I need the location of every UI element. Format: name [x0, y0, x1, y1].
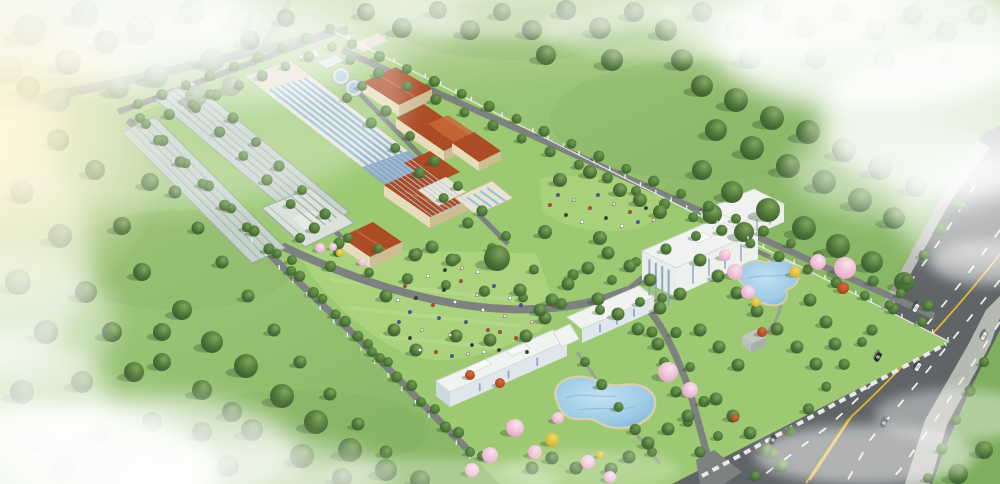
street-tree [803, 403, 814, 414]
garden-tree [380, 290, 393, 303]
person [530, 320, 533, 323]
street-tree [646, 326, 657, 337]
yellow-shrub [545, 433, 559, 447]
tree [304, 410, 328, 434]
fence-post [609, 167, 610, 172]
garden-tree [612, 308, 625, 321]
aerial-site-rendering [0, 0, 1000, 484]
person [636, 220, 639, 223]
garden-tree [446, 254, 459, 267]
street-tree [773, 251, 784, 262]
street-tree [685, 362, 695, 372]
garden-tree [380, 446, 393, 459]
blossom-tree [658, 362, 678, 382]
street-tree [884, 300, 894, 310]
fence-post [763, 244, 764, 249]
person [437, 316, 440, 319]
fence-post [655, 190, 656, 195]
person [426, 274, 429, 277]
tree [705, 119, 727, 141]
fence-post [548, 136, 549, 141]
fence-post [671, 198, 672, 203]
street-tree [405, 131, 415, 141]
garden-tree [644, 274, 657, 287]
garden-tree [324, 388, 337, 401]
person [580, 220, 583, 223]
street-tree [242, 222, 252, 232]
street-tree [648, 176, 659, 187]
garden-tree [662, 423, 675, 436]
garden-tree [593, 231, 607, 245]
person [548, 203, 551, 206]
garden-tree [546, 294, 559, 307]
garden-tree [409, 249, 422, 262]
street-tree [621, 164, 631, 174]
street-tree [465, 447, 475, 457]
street-tree [295, 233, 305, 243]
person [481, 308, 484, 311]
street-tree [364, 268, 374, 278]
person [464, 320, 467, 323]
street-tree [440, 421, 451, 432]
fence-post [279, 265, 280, 270]
street-tree [917, 317, 927, 327]
tree [153, 353, 171, 371]
street-tree [566, 139, 576, 149]
tree [740, 136, 764, 160]
person [564, 213, 567, 216]
street-tree [462, 217, 473, 228]
garden-tree [602, 247, 615, 260]
person [453, 300, 456, 303]
street-tree [860, 291, 870, 301]
street-tree [857, 337, 867, 347]
street-tree [416, 397, 426, 407]
garden-tree [592, 293, 605, 306]
street-tree [512, 114, 522, 124]
street-tree [574, 160, 584, 170]
garden-tree [388, 324, 401, 337]
person [443, 268, 446, 271]
street-tree [595, 305, 605, 315]
person [408, 336, 411, 339]
fence-post [428, 414, 429, 419]
street-tree [286, 199, 296, 209]
tree [124, 362, 144, 382]
street-tree [402, 273, 413, 284]
street-tree [713, 431, 723, 441]
street-tree [839, 359, 850, 370]
person [431, 303, 434, 306]
garden-tree [713, 341, 726, 354]
person [525, 350, 528, 353]
street-tree [352, 331, 363, 342]
street-tree [896, 289, 906, 299]
fence-post [901, 314, 902, 319]
street-tree [343, 233, 353, 243]
tree [861, 251, 883, 273]
person [519, 303, 522, 306]
garden-tree [216, 256, 229, 269]
garden-tree [744, 427, 757, 440]
garden-tree [426, 241, 439, 254]
garden-tree [654, 302, 667, 315]
street-tree [317, 294, 327, 304]
blossom-tree [482, 447, 498, 463]
fence-post [251, 238, 252, 243]
yellow-shrub [751, 297, 761, 307]
tree [792, 216, 816, 240]
tree [756, 198, 780, 222]
blossom-tree [741, 285, 755, 299]
street-tree [716, 225, 727, 236]
fence-post [388, 373, 389, 378]
garden-tree [553, 173, 567, 187]
person [497, 348, 500, 351]
street-tree [745, 238, 755, 248]
fence-post [640, 182, 641, 187]
street-tree [263, 243, 274, 254]
garden-tree [294, 356, 307, 369]
garden-tree [694, 324, 707, 337]
fence-post [717, 221, 718, 226]
person [486, 328, 489, 331]
street-tree [596, 379, 607, 390]
person [396, 298, 399, 301]
person [612, 202, 615, 205]
person [450, 354, 453, 357]
person [403, 284, 406, 287]
garden-tree [562, 278, 575, 291]
garden-tree [732, 359, 745, 372]
fence-post [333, 319, 334, 324]
street-tree [607, 275, 617, 285]
street-tree [657, 293, 667, 303]
street-tree [670, 327, 681, 338]
garden-tree [613, 183, 627, 197]
blossom-tree [358, 258, 366, 266]
street-tree [453, 181, 463, 191]
fence-post [347, 333, 348, 338]
yellow-shrub [336, 249, 344, 257]
street-tree [538, 126, 549, 137]
street-tree [453, 427, 464, 438]
yellow-shrub [789, 266, 801, 278]
person [420, 328, 423, 331]
fence-post [794, 260, 795, 265]
person [492, 284, 495, 287]
tree [133, 263, 151, 281]
street-tree [383, 357, 393, 367]
street-tree [367, 347, 377, 357]
garden-tree [710, 393, 723, 406]
person [514, 336, 517, 339]
street-tree [630, 424, 641, 435]
fence-post [532, 128, 533, 133]
garden-tree [242, 290, 255, 303]
street-tree [688, 212, 698, 222]
street-tree [676, 189, 686, 199]
street-tree [758, 226, 769, 237]
fence-post [701, 213, 702, 218]
street-tree [340, 316, 351, 327]
street-tree [691, 231, 701, 241]
garden-tree [804, 294, 817, 307]
street-tree [517, 134, 527, 144]
street-tree [286, 266, 296, 276]
street-tree [391, 371, 402, 382]
person [418, 348, 421, 351]
tree [975, 441, 993, 459]
person [442, 288, 445, 291]
garden-tree [771, 323, 784, 336]
street-tree [373, 244, 383, 254]
person [470, 343, 473, 346]
street-tree [660, 243, 671, 254]
garden-tree [624, 260, 637, 273]
garden-tree [791, 341, 804, 354]
street-tree [457, 89, 467, 99]
blossom-tree [315, 243, 325, 253]
fence-post [471, 97, 472, 102]
garden-tree [633, 193, 647, 207]
tree [270, 384, 294, 408]
garden-tree [484, 334, 497, 347]
street-tree [501, 231, 511, 241]
fog-blob [540, 0, 780, 60]
street-tree [866, 324, 877, 335]
fence-post [932, 329, 933, 334]
street-tree [694, 446, 705, 457]
fence-post [319, 306, 320, 311]
street-tree [430, 404, 440, 414]
fence-post [501, 112, 502, 117]
garden-tree [582, 262, 595, 275]
fence-post [456, 441, 457, 446]
tree [724, 88, 748, 112]
street-tree [479, 286, 490, 297]
blossom-tree [552, 412, 564, 424]
person [460, 266, 463, 269]
tree [192, 380, 212, 400]
garden-tree [653, 205, 667, 219]
street-tree [428, 155, 439, 166]
garden-tree [268, 324, 281, 337]
fog-blob [790, 120, 1000, 220]
street-tree [487, 120, 498, 131]
tree [692, 160, 712, 180]
tree [826, 234, 850, 258]
person [604, 216, 607, 219]
street-tree [319, 208, 330, 219]
person [476, 270, 479, 273]
garden-tree [829, 338, 842, 351]
street-tree [901, 274, 912, 285]
blossom-tree [727, 264, 743, 280]
blossom-tree [810, 254, 826, 270]
person [475, 293, 478, 296]
person [448, 333, 451, 336]
street-tree [868, 275, 879, 286]
blossom-tree [834, 257, 856, 279]
blossom-tree [506, 419, 524, 437]
street-tree [821, 382, 831, 392]
street-tree [786, 239, 796, 249]
garden-tree [810, 358, 823, 371]
street-tree [430, 94, 441, 105]
person [498, 330, 501, 333]
garden-tree [520, 330, 533, 343]
street-tree [580, 357, 590, 367]
fence-post [855, 291, 856, 296]
garden-tree [632, 323, 645, 336]
street-tree [545, 146, 556, 157]
street-tree [476, 205, 487, 216]
garden-tree [583, 165, 597, 179]
red-shrub [495, 378, 505, 388]
person [620, 224, 623, 227]
street-tree [331, 309, 341, 319]
street-tree [325, 261, 336, 272]
garden-tree [642, 437, 655, 450]
person [466, 352, 469, 355]
red-shrub [465, 370, 475, 380]
street-tree [614, 402, 624, 412]
garden-tree [484, 245, 510, 271]
street-tree [308, 287, 319, 298]
person [482, 350, 485, 353]
street-tree [459, 107, 469, 117]
garden-tree [352, 418, 365, 431]
tree [201, 331, 223, 353]
tree [234, 354, 258, 378]
street-tree [529, 265, 539, 275]
street-tree [439, 193, 449, 203]
street-tree [922, 300, 933, 311]
garden-tree [192, 222, 205, 235]
street-tree [750, 471, 760, 481]
tree [153, 323, 171, 341]
blossom-tree [682, 382, 698, 398]
person [414, 296, 417, 299]
person [397, 320, 400, 323]
garden-tree [514, 284, 527, 297]
fence-post [578, 151, 579, 156]
person [459, 279, 462, 282]
person [503, 314, 506, 317]
tree [721, 181, 743, 203]
fence-post [870, 298, 871, 303]
street-tree [703, 201, 714, 212]
person [596, 193, 599, 196]
street-tree [602, 172, 613, 183]
street-tree [979, 357, 989, 367]
street-tree [309, 222, 320, 233]
person [408, 310, 411, 313]
person [652, 218, 655, 221]
scene-canvas [0, 0, 1000, 484]
fence-post [824, 275, 825, 280]
red-shrub [731, 414, 739, 422]
garden-tree [652, 338, 665, 351]
garden-tree [534, 304, 547, 317]
fence-post [947, 337, 948, 342]
red-shrub [757, 327, 767, 337]
garden-tree [538, 225, 552, 239]
person [434, 350, 437, 353]
street-tree [731, 214, 741, 224]
street-tree [406, 380, 417, 391]
person [644, 206, 647, 209]
garden-tree [674, 288, 687, 301]
blossom-tree [719, 249, 731, 261]
person [588, 206, 591, 209]
garden-tree [682, 410, 695, 423]
garden-tree [694, 254, 707, 267]
person [572, 198, 575, 201]
fence-post [686, 205, 687, 210]
red-shrub [837, 282, 849, 294]
street-tree [484, 101, 495, 112]
fence-post [732, 229, 733, 234]
blossom-tree [329, 243, 337, 251]
street-tree [635, 297, 645, 307]
tree [172, 300, 192, 320]
street-tree [287, 255, 297, 265]
street-tree [414, 167, 425, 178]
person [556, 193, 559, 196]
tree [760, 106, 784, 130]
street-tree [390, 143, 400, 153]
person [508, 296, 511, 299]
street-tree [441, 280, 451, 290]
person [628, 210, 631, 213]
fence-post [624, 174, 625, 179]
street-tree [593, 151, 604, 162]
garden-tree [820, 316, 833, 329]
